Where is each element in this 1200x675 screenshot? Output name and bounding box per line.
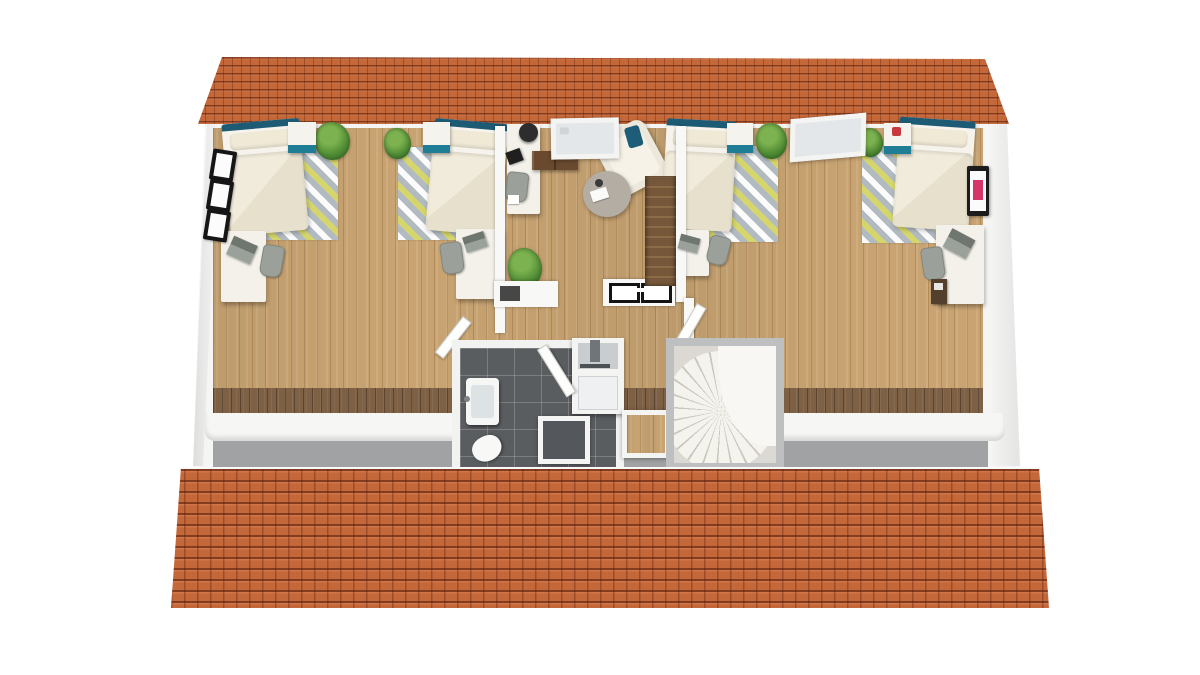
nightstand-drawer-teal [288, 145, 316, 153]
nightstand-2 [423, 122, 450, 153]
floor-roof-window-2 [622, 410, 670, 458]
spiral-stair-room [666, 338, 784, 471]
wall-office-right [676, 126, 686, 302]
panel-symbol-left [609, 283, 640, 303]
table-decor [595, 179, 603, 187]
red-decor [892, 127, 901, 136]
magazine [590, 187, 610, 203]
duvet [224, 150, 309, 236]
shower-tray [578, 376, 618, 410]
gable-window-2 [206, 178, 235, 212]
duvet [892, 148, 973, 231]
straight-staircase [645, 176, 676, 286]
vanity-sink [466, 378, 499, 425]
nightstand-drawer-teal [423, 145, 450, 153]
drawer-label [934, 283, 943, 290]
plant-4 [756, 123, 787, 159]
wall-art-pink [967, 166, 989, 216]
bathroom-floor-window [538, 416, 590, 464]
nightstand-1 [288, 122, 316, 153]
chair-2 [439, 241, 465, 276]
roof-back-slope [196, 57, 1010, 126]
duvet [425, 150, 506, 236]
nightstand-3 [727, 123, 753, 153]
roof-front-slope [171, 467, 1049, 610]
paper-sheet [508, 195, 519, 204]
pillow [229, 128, 294, 151]
shower-column [590, 340, 600, 362]
gable-window-1 [209, 148, 238, 182]
roof-window-office [551, 117, 620, 159]
nightstand-drawer-teal [727, 145, 753, 153]
wall-niche [500, 286, 520, 301]
window-handle [560, 127, 569, 134]
plant-2 [384, 128, 411, 159]
floorplan-scene [0, 0, 1200, 675]
roof-window-tilted [790, 113, 866, 163]
gable-window-3 [203, 208, 232, 242]
nightstand-4 [884, 123, 911, 154]
pillow [905, 127, 968, 148]
faucet [464, 396, 470, 402]
panel-symbol-right [641, 283, 672, 303]
sink-basin [471, 385, 494, 418]
bathroom [452, 340, 624, 467]
art-print [973, 180, 983, 200]
coffee-table [583, 171, 631, 217]
plant-1 [315, 122, 350, 160]
shower-enclosure [572, 338, 624, 414]
drawer-unit [931, 279, 947, 304]
wall-hall-niche [494, 281, 558, 307]
shower-shelf [580, 364, 610, 368]
office-chair-black [519, 123, 538, 142]
nightstand-drawer-teal [884, 146, 911, 154]
chair-4 [920, 246, 946, 282]
